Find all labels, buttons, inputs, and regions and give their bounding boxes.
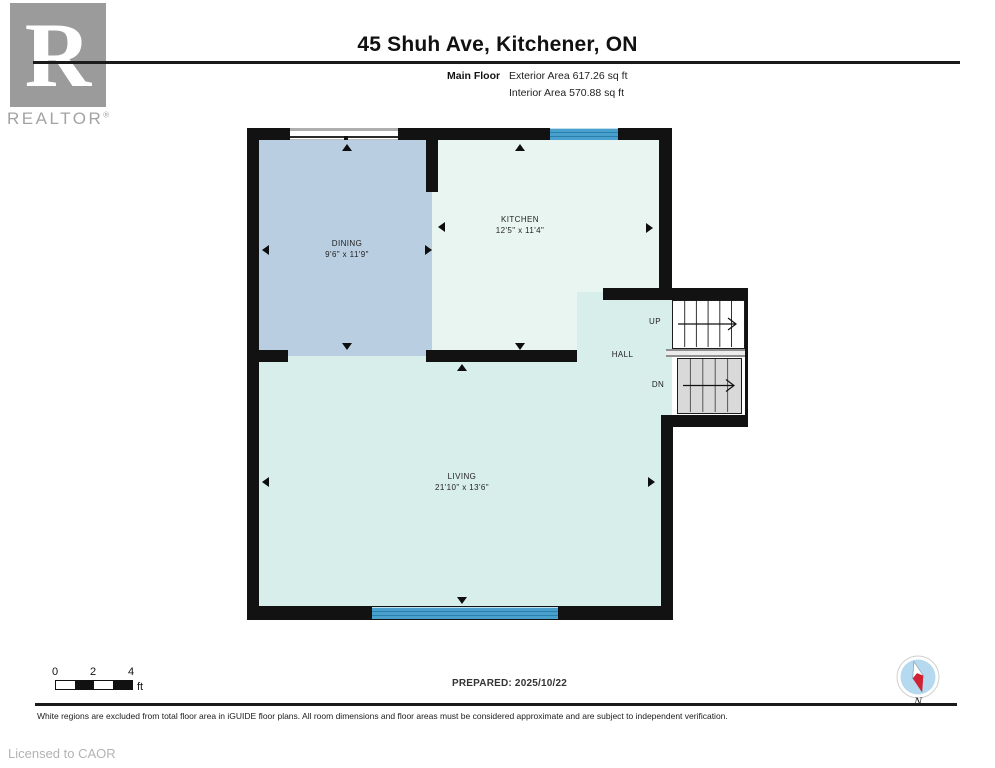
living-arrow-right-icon: [648, 477, 655, 487]
page-title: 45 Shuh Ave, Kitchener, ON: [0, 33, 995, 57]
license-text: Licensed to CAOR: [8, 746, 116, 761]
wall-stair-bottom: [661, 415, 748, 427]
scale-unit: ft: [137, 681, 143, 693]
compass-icon: [896, 655, 940, 699]
living-window: [372, 607, 558, 619]
dining-dims: 9'6" x 11'9": [287, 249, 407, 260]
stair-landing: [666, 349, 745, 357]
kitchen-name: KITCHEN: [460, 214, 580, 225]
dining-arrow-right-icon: [425, 245, 432, 255]
wall-right-lower: [661, 415, 673, 620]
wall-stair-right: [745, 300, 748, 427]
exterior-area: Exterior Area 617.26 sq ft: [509, 70, 627, 82]
wall-left: [247, 128, 259, 620]
living-label: LIVING 21'10" x 13'6": [402, 471, 522, 493]
dining-label: DINING 9'6" x 11'9": [287, 238, 407, 260]
scale-tick-4: 4: [126, 666, 136, 678]
footer-divider: [35, 703, 957, 706]
stairs-up: [672, 300, 745, 349]
kitchen-label: KITCHEN 12'5" x 11'4": [460, 214, 580, 236]
stairs-up-label: UP: [640, 317, 670, 326]
living-dims: 21'10" x 13'6": [402, 482, 522, 493]
kitchen-dims: 12'5" x 11'4": [460, 225, 580, 236]
compass-north-label: N: [906, 694, 930, 709]
dining-arrow-up-icon: [342, 144, 352, 151]
realtor-wordmark: REALTOR®: [7, 109, 109, 129]
kitchen-arrow-right-icon: [646, 223, 653, 233]
patio-door: [290, 128, 398, 140]
interior-area: Interior Area 570.88 sq ft: [509, 87, 624, 99]
kitchen-arrow-down-icon: [515, 343, 525, 350]
wall-kitchen-south: [426, 350, 577, 362]
dining-arrow-down-icon: [342, 343, 352, 350]
floor-name: Main Floor: [447, 70, 500, 82]
kitchen-arrow-left-icon: [438, 222, 445, 232]
prepared-date: PREPARED: 2025/10/22: [452, 678, 567, 689]
scale-tick-0: 0: [50, 666, 60, 678]
stairs-down: [677, 358, 742, 414]
stairs-down-label: DN: [643, 380, 673, 389]
dining-arrow-left-icon: [262, 245, 269, 255]
stairs-down-treads: [678, 359, 740, 412]
kitchen-arrow-up-icon: [515, 144, 525, 151]
scale-bar: [55, 680, 133, 690]
living-arrow-up-icon: [457, 364, 467, 371]
living-name: LIVING: [402, 471, 522, 482]
registered-mark: ®: [103, 110, 109, 119]
patio-door-handle: [344, 136, 348, 140]
wall-dining-kitchen-divider: [426, 140, 438, 192]
living-arrow-down-icon: [457, 597, 467, 604]
header-divider: [33, 61, 960, 64]
hall-label: HALL: [600, 350, 645, 359]
disclaimer-text: White regions are excluded from total fl…: [37, 711, 967, 721]
stairs-up-treads: [673, 301, 743, 347]
scale-tick-2: 2: [88, 666, 98, 678]
dining-name: DINING: [287, 238, 407, 249]
wall-right-upper: [659, 128, 672, 300]
wall-dining-south-stub: [259, 350, 288, 362]
living-arrow-left-icon: [262, 477, 269, 487]
wall-stair-top: [603, 288, 748, 300]
kitchen-window: [550, 128, 618, 140]
